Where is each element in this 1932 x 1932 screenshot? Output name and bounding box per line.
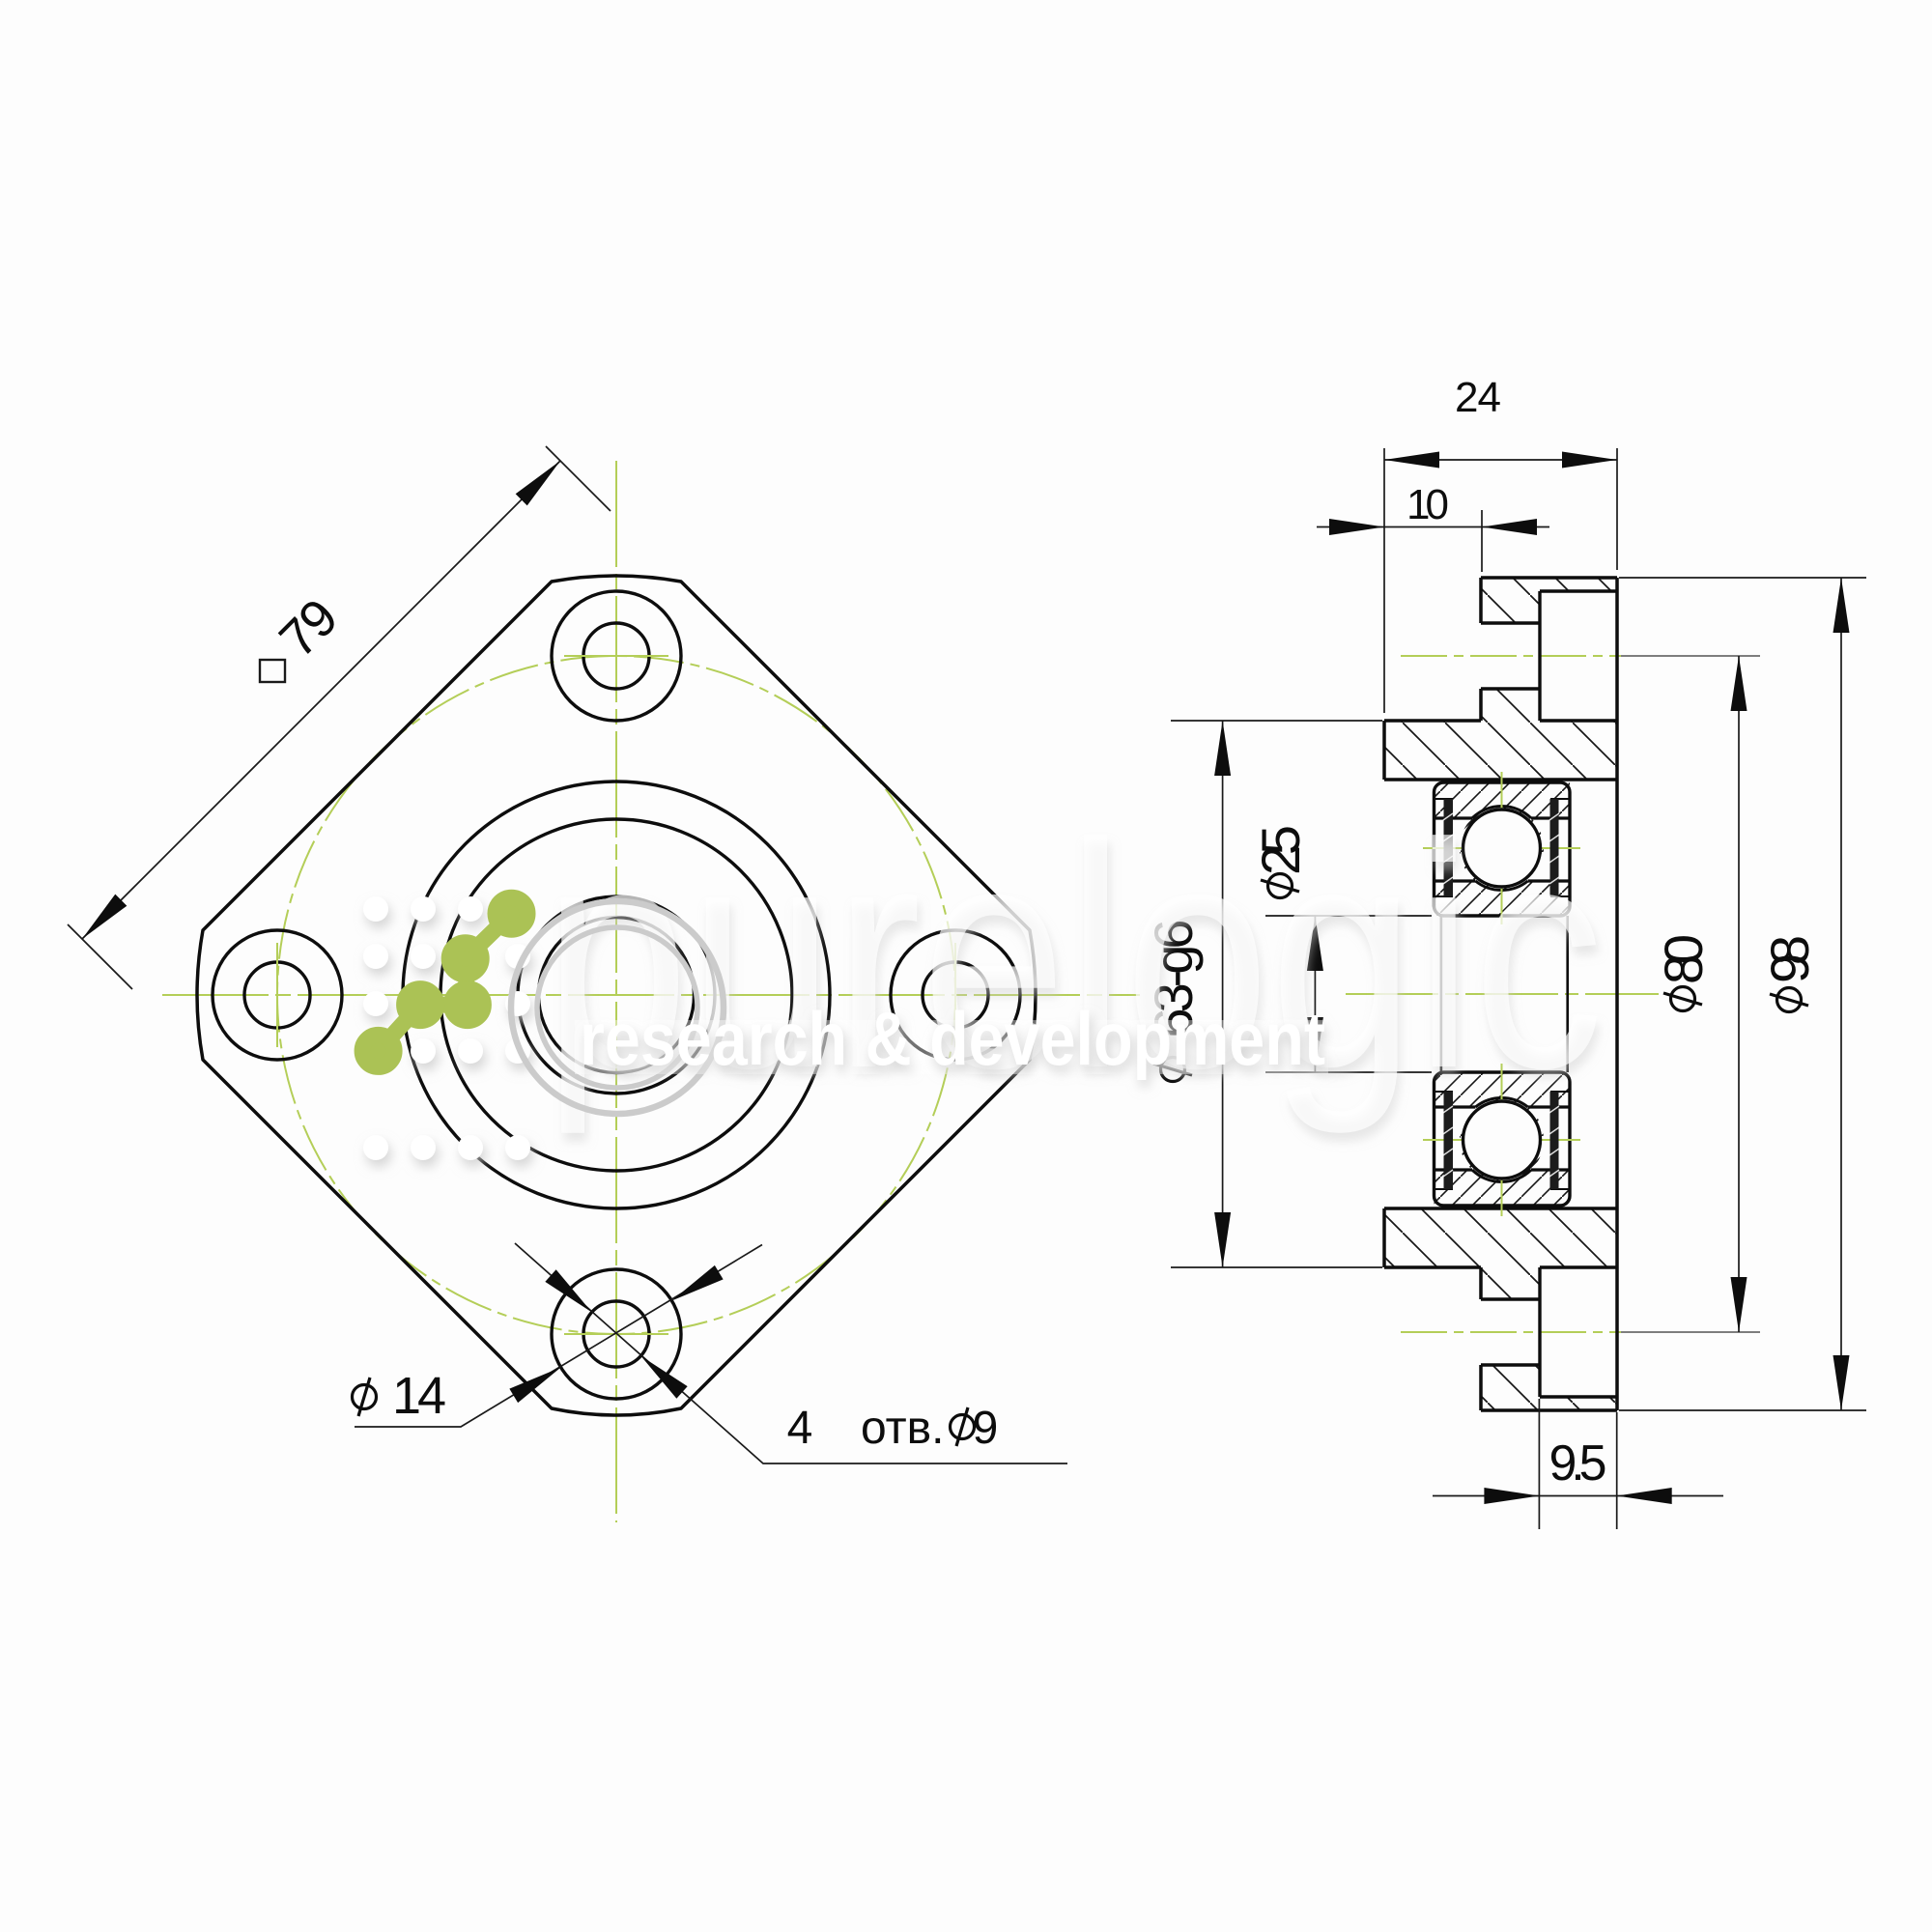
svg-text:98: 98 [1759,935,1820,983]
svg-text:purelogic: purelogic [544,778,1604,1136]
svg-text:80: 80 [1653,934,1714,984]
svg-text:отв.: отв. [861,1403,944,1454]
svg-text:24: 24 [1455,374,1501,421]
svg-text:10: 10 [1406,481,1449,528]
svg-text:9.5: 9.5 [1549,1435,1607,1492]
svg-text:4: 4 [787,1403,813,1454]
svg-text:14: 14 [392,1367,446,1425]
svg-text:9: 9 [973,1403,999,1454]
svg-text:research & development: research & development [580,996,1325,1081]
